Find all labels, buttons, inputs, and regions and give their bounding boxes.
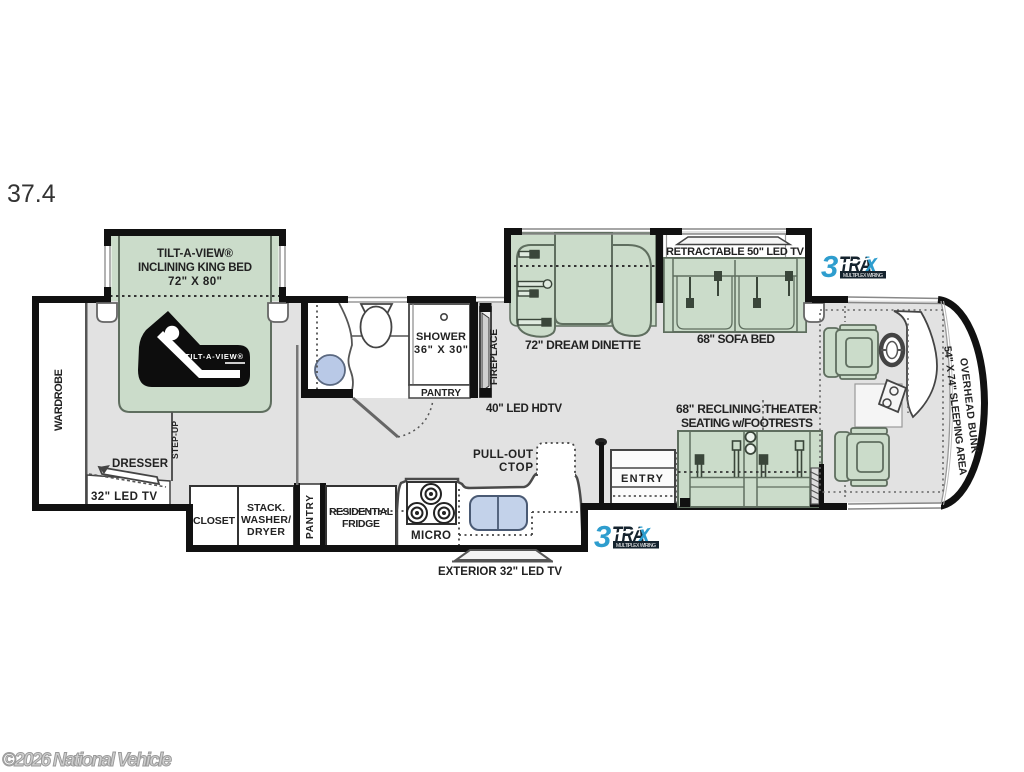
svg-text:WASHER/: WASHER/ [241,514,291,526]
svg-text:STACK.: STACK. [247,502,285,514]
svg-text:SHOWER: SHOWER [416,331,466,343]
svg-text:32" LED TV: 32" LED TV [91,491,157,503]
svg-text:MULTIPLEX WIRING: MULTIPLEX WIRING [616,543,656,549]
svg-text:SEATING w/FOOTRESTS: SEATING w/FOOTRESTS [681,416,813,430]
svg-text:PANTRY: PANTRY [421,388,461,399]
svg-text:FIREPLACE: FIREPLACE [489,329,500,385]
svg-text:MULTIPLEX WIRING: MULTIPLEX WIRING [843,273,883,279]
svg-text:40" LED HDTV: 40" LED HDTV [486,403,562,415]
svg-text:MICRO: MICRO [411,530,451,542]
svg-text:INCLINING KING BED: INCLINING KING BED [138,262,252,274]
svg-text:DRESSER: DRESSER [112,458,169,470]
svg-text:FRIDGE: FRIDGE [342,518,380,530]
svg-text:ENTRY: ENTRY [621,473,664,485]
svg-text:PULL-OUT: PULL-OUT [473,449,533,461]
svg-text:RETRACTABLE 50" LED TV: RETRACTABLE 50" LED TV [666,246,805,258]
svg-text:72" DREAM DINETTE: 72" DREAM DINETTE [525,338,641,352]
svg-text:DRYER: DRYER [247,526,285,538]
svg-text:36" X 30": 36" X 30" [414,344,468,356]
svg-text:3: 3 [821,249,838,284]
svg-text:EXTERIOR 32" LED TV: EXTERIOR 32" LED TV [438,566,562,578]
svg-text:37.4: 37.4 [7,180,56,208]
svg-text:TILT-A-VIEW®: TILT-A-VIEW® [185,352,243,361]
svg-text:72" X 80": 72" X 80" [168,276,222,288]
svg-text:WARDROBE: WARDROBE [53,369,65,431]
svg-text:68" SOFA BED: 68" SOFA BED [697,332,775,346]
svg-text:STEP-UP: STEP-UP [170,421,180,459]
svg-text:CLOSET: CLOSET [193,515,236,527]
svg-text:CTOP: CTOP [499,462,533,474]
svg-text:3: 3 [594,519,611,554]
svg-text:©2026 National Vehicle: ©2026 National Vehicle [2,750,172,771]
svg-text:PANTRY: PANTRY [305,495,316,539]
svg-text:68" RECLINING THEATER: 68" RECLINING THEATER [676,402,818,416]
svg-text:TILT-A-VIEW®: TILT-A-VIEW® [157,248,234,260]
svg-text:RESIDENTIAL: RESIDENTIAL [329,506,394,518]
